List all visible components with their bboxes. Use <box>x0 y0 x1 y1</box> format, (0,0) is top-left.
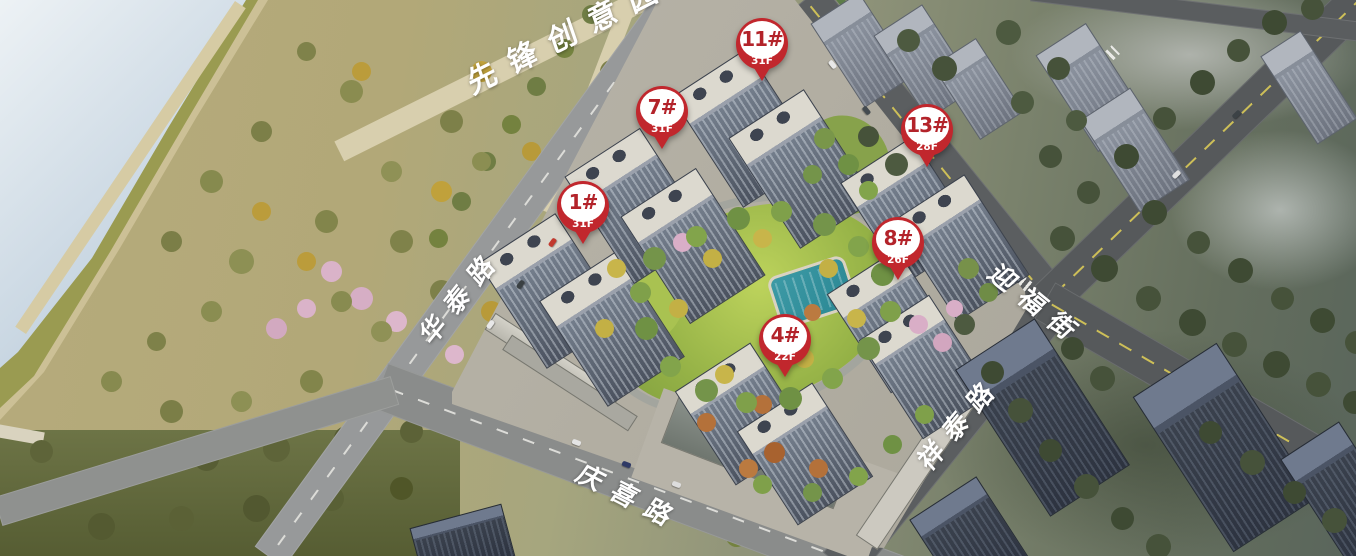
building-marker-11[interactable]: 11# 31F <box>736 18 788 84</box>
building-marker-1[interactable]: 1# 31F <box>557 181 609 247</box>
marker-floor-count: 22F <box>759 351 811 363</box>
marker-building-number: 8# <box>872 219 924 257</box>
building-marker-8[interactable]: 8# 26F <box>872 217 924 283</box>
marker-floor-count: 31F <box>557 218 609 230</box>
east-dark-tree-field <box>0 0 13 13</box>
marker-floor-count: 31F <box>636 123 688 135</box>
building-marker-13[interactable]: 13# 28F <box>901 104 953 170</box>
marker-building-number: 7# <box>636 88 688 126</box>
building-marker-7[interactable]: 7# 31F <box>636 86 688 152</box>
marker-building-number: 13# <box>901 106 953 144</box>
marker-floor-count: 26F <box>872 254 924 266</box>
marker-building-number: 1# <box>557 183 609 221</box>
building-marker-4[interactable]: 4# 22F <box>759 314 811 380</box>
aerial-masterplan-render: 先锋创意园 华泰路 庆喜路 祥泰路 迎福街 1# 31F 7# 31F 11# … <box>0 0 1356 556</box>
marker-floor-count: 31F <box>736 55 788 67</box>
marker-building-number: 4# <box>759 316 811 354</box>
marker-floor-count: 28F <box>901 141 953 153</box>
marker-building-number: 11# <box>736 20 788 58</box>
